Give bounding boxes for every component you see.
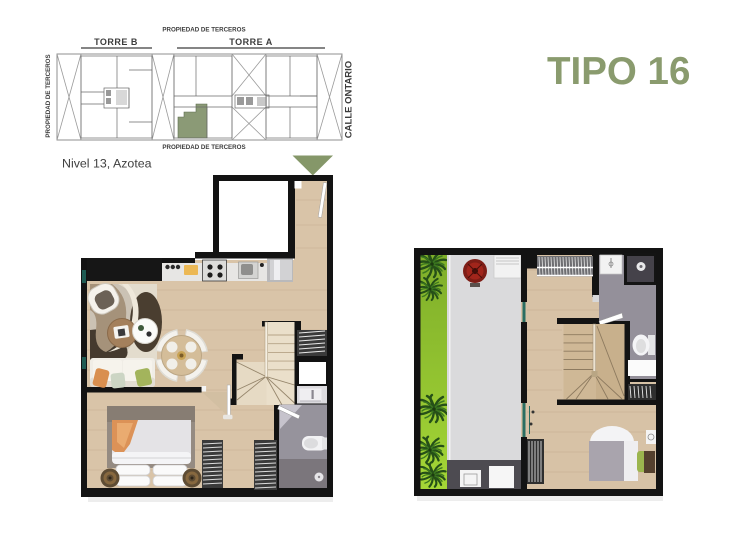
svg-text:PROPIEDAD DE TERCEROS: PROPIEDAD DE TERCEROS bbox=[45, 54, 52, 137]
svg-text:CALLE ONTARIO: CALLE ONTARIO bbox=[344, 61, 355, 138]
svg-text:PROPIEDAD DE TERCEROS: PROPIEDAD DE TERCEROS bbox=[162, 27, 245, 34]
svg-text:TORRE A: TORRE A bbox=[229, 37, 273, 47]
svg-text:Nivel 13, Azotea: Nivel 13, Azotea bbox=[62, 157, 152, 171]
svg-text:PROPIEDAD DE TERCEROS: PROPIEDAD DE TERCEROS bbox=[162, 144, 245, 151]
svg-text:TIPO 16: TIPO 16 bbox=[547, 50, 690, 93]
svg-text:TORRE B: TORRE B bbox=[94, 37, 138, 47]
